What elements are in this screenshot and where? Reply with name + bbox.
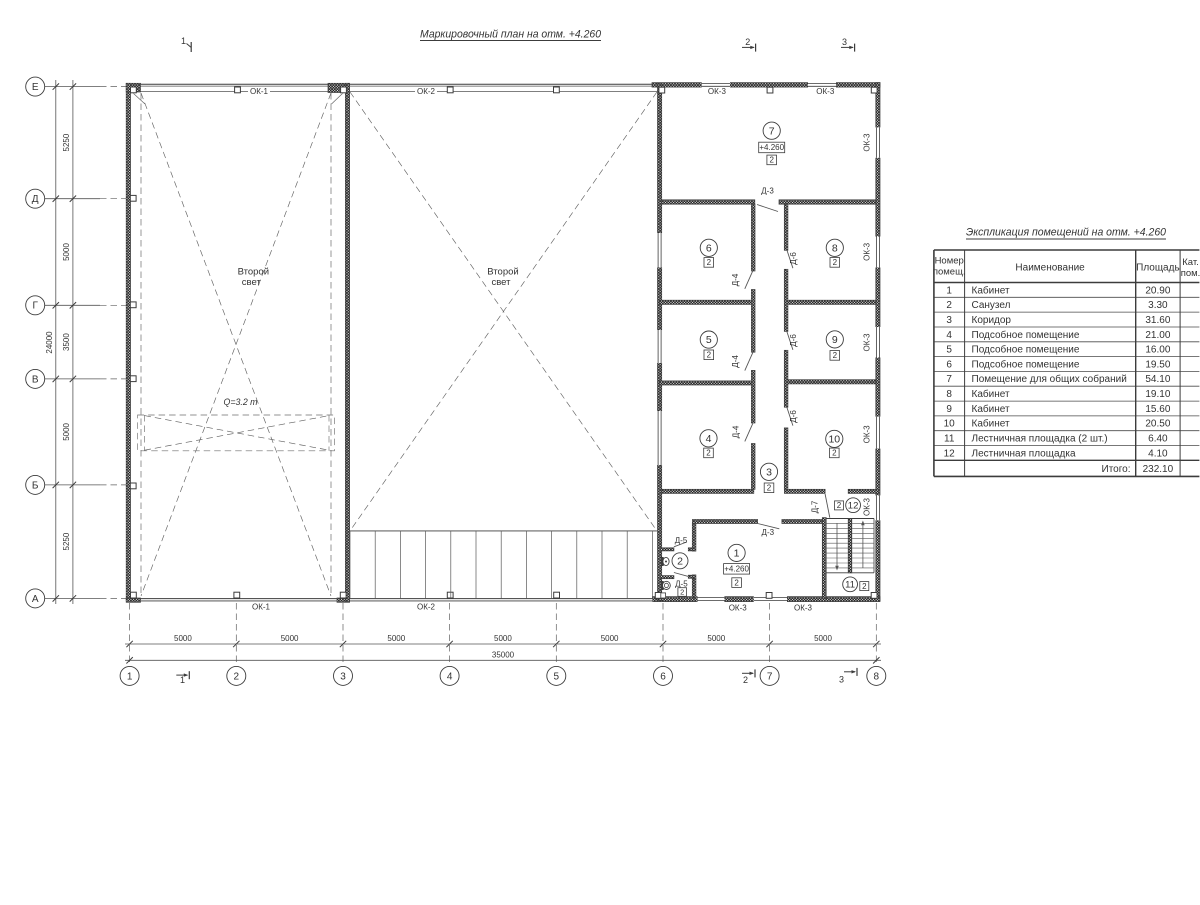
svg-text:2: 2 <box>833 258 838 267</box>
svg-text:3500: 3500 <box>62 333 71 351</box>
svg-text:2: 2 <box>862 582 867 591</box>
svg-text:Лестничная площадка (2 шт.): Лестничная площадка (2 шт.) <box>972 434 1108 445</box>
svg-text:Экспликация помещений на отм.: Экспликация помещений на отм. +4.260 <box>966 227 1167 239</box>
svg-text:5000: 5000 <box>174 634 192 643</box>
svg-text:5250: 5250 <box>62 532 71 550</box>
svg-text:помещ.: помещ. <box>933 267 966 278</box>
svg-text:2: 2 <box>734 578 739 587</box>
svg-text:5: 5 <box>706 334 712 346</box>
svg-text:Помещение для общих собраний: Помещение для общих собраний <box>972 373 1127 385</box>
svg-text:3: 3 <box>946 315 952 326</box>
svg-text:2: 2 <box>680 588 684 597</box>
svg-text:20.50: 20.50 <box>1145 419 1170 430</box>
svg-text:6.40: 6.40 <box>1148 434 1168 445</box>
svg-text:9: 9 <box>832 334 838 346</box>
svg-text:7: 7 <box>946 374 952 385</box>
svg-text:3: 3 <box>842 37 847 47</box>
svg-text:Итого:: Итого: <box>1102 464 1131 475</box>
svg-text:5: 5 <box>554 671 560 682</box>
svg-text:19.50: 19.50 <box>1145 359 1170 370</box>
svg-text:ОК-3: ОК-3 <box>863 333 872 352</box>
svg-text:1: 1 <box>946 285 952 296</box>
svg-text:4: 4 <box>706 433 712 445</box>
svg-text:Д-3: Д-3 <box>762 528 775 537</box>
svg-text:Кабинет: Кабинет <box>972 388 1010 400</box>
svg-text:15.60: 15.60 <box>1145 404 1170 415</box>
svg-text:1: 1 <box>127 671 133 682</box>
svg-text:Д-4: Д-4 <box>732 425 741 438</box>
svg-text:5000: 5000 <box>601 634 619 643</box>
svg-text:Подсобное помещение: Подсобное помещение <box>972 344 1080 356</box>
svg-text:5: 5 <box>946 345 952 356</box>
svg-text:7: 7 <box>767 671 773 682</box>
svg-text:2: 2 <box>837 501 842 510</box>
svg-text:Г: Г <box>32 301 38 312</box>
svg-text:Второй: Второй <box>238 267 269 278</box>
svg-text:Д: Д <box>32 194 39 205</box>
svg-text:2: 2 <box>946 300 952 311</box>
svg-text:Маркировочный план на отм. +4.: Маркировочный план на отм. +4.260 <box>420 29 602 41</box>
svg-text:19.10: 19.10 <box>1145 389 1170 400</box>
svg-text:Подсобное помещение: Подсобное помещение <box>972 329 1080 341</box>
svg-text:5000: 5000 <box>814 634 832 643</box>
svg-text:Д-7: Д-7 <box>810 500 819 513</box>
svg-text:8: 8 <box>946 389 952 400</box>
svg-text:ОК-3: ОК-3 <box>863 497 872 516</box>
svg-text:Д-4: Д-4 <box>731 355 740 368</box>
svg-text:16.00: 16.00 <box>1145 345 1170 356</box>
svg-text:1: 1 <box>734 548 740 560</box>
svg-text:ОК-3: ОК-3 <box>794 604 813 613</box>
svg-text:3.30: 3.30 <box>1148 300 1168 311</box>
svg-text:Кат.: Кат. <box>1182 257 1199 268</box>
svg-text:5000: 5000 <box>281 634 299 643</box>
svg-text:+4.260: +4.260 <box>724 565 749 574</box>
svg-text:8: 8 <box>874 671 880 682</box>
svg-text:пом.: пом. <box>1181 268 1200 279</box>
svg-text:232.10: 232.10 <box>1143 464 1174 475</box>
svg-text:12: 12 <box>944 448 956 459</box>
svg-text:Д-6: Д-6 <box>789 410 798 423</box>
svg-text:2: 2 <box>234 671 240 682</box>
svg-text:Наименование: Наименование <box>1015 263 1085 274</box>
svg-text:10: 10 <box>944 419 956 430</box>
svg-text:ОК-3: ОК-3 <box>863 242 872 261</box>
svg-text:8: 8 <box>832 242 838 254</box>
svg-text:2: 2 <box>832 449 837 458</box>
svg-text:1: 1 <box>181 36 186 46</box>
svg-text:Q=3.2 т: Q=3.2 т <box>224 397 258 407</box>
svg-text:2: 2 <box>769 156 774 165</box>
svg-text:Второй: Второй <box>487 267 518 278</box>
svg-text:Кабинет: Кабинет <box>972 284 1010 296</box>
svg-text:2: 2 <box>707 258 712 267</box>
svg-text:В: В <box>32 374 39 385</box>
svg-text:31.60: 31.60 <box>1145 315 1170 326</box>
svg-text:Д-6: Д-6 <box>789 252 798 265</box>
svg-text:7: 7 <box>769 125 775 137</box>
svg-text:ОК-2: ОК-2 <box>417 603 436 612</box>
svg-text:Санузел: Санузел <box>972 300 1011 311</box>
svg-text:Площадь: Площадь <box>1136 263 1180 274</box>
svg-text:4: 4 <box>447 671 453 682</box>
svg-text:ОК-3: ОК-3 <box>729 604 748 613</box>
svg-text:ОК-1: ОК-1 <box>250 87 269 96</box>
svg-text:свет: свет <box>242 277 262 288</box>
svg-text:5000: 5000 <box>387 634 405 643</box>
svg-text:Кабинет: Кабинет <box>972 403 1010 415</box>
svg-text:6: 6 <box>946 359 952 370</box>
svg-text:Номер: Номер <box>935 256 964 267</box>
svg-text:3: 3 <box>766 466 772 478</box>
svg-text:ОК-3: ОК-3 <box>708 87 727 96</box>
svg-text:6: 6 <box>706 242 712 254</box>
svg-text:11: 11 <box>845 580 855 591</box>
svg-text:6: 6 <box>660 671 666 682</box>
svg-text:Коридор: Коридор <box>972 315 1012 326</box>
svg-text:ОК-3: ОК-3 <box>863 425 872 444</box>
svg-text:5000: 5000 <box>494 634 512 643</box>
svg-text:4: 4 <box>946 330 952 341</box>
svg-text:2: 2 <box>745 37 750 47</box>
svg-text:5250: 5250 <box>62 133 71 151</box>
svg-text:12: 12 <box>848 500 859 511</box>
svg-text:3: 3 <box>839 675 844 685</box>
svg-text:2: 2 <box>833 351 838 360</box>
svg-text:+4.260: +4.260 <box>759 143 784 152</box>
svg-text:ОК-3: ОК-3 <box>816 87 835 96</box>
svg-text:Д-4: Д-4 <box>731 273 740 286</box>
svg-text:54.10: 54.10 <box>1145 374 1170 385</box>
svg-text:Подсобное помещение: Подсобное помещение <box>972 358 1080 370</box>
svg-text:Кабинет: Кабинет <box>972 418 1010 430</box>
svg-text:35000: 35000 <box>492 650 515 659</box>
svg-text:Лестничная площадка: Лестничная площадка <box>972 448 1076 459</box>
svg-text:ОК-3: ОК-3 <box>863 133 872 152</box>
svg-text:Б: Б <box>32 480 39 491</box>
svg-text:20.90: 20.90 <box>1145 285 1170 296</box>
svg-text:5000: 5000 <box>62 422 71 440</box>
svg-text:ОК-2: ОК-2 <box>417 87 436 96</box>
svg-text:24000: 24000 <box>45 331 54 354</box>
svg-text:4.10: 4.10 <box>1148 448 1168 459</box>
svg-text:2: 2 <box>677 555 683 567</box>
svg-text:10: 10 <box>828 434 840 446</box>
svg-text:Д-5: Д-5 <box>675 536 688 545</box>
svg-text:Д-6: Д-6 <box>789 334 798 347</box>
svg-text:Е: Е <box>32 82 39 93</box>
svg-text:5000: 5000 <box>707 634 725 643</box>
svg-text:3: 3 <box>340 671 346 682</box>
svg-text:2: 2 <box>767 484 772 493</box>
svg-text:Д-3: Д-3 <box>761 187 774 196</box>
svg-text:ОК-1: ОК-1 <box>252 603 271 612</box>
svg-text:5000: 5000 <box>62 243 71 261</box>
svg-text:11: 11 <box>944 434 955 445</box>
svg-text:А: А <box>32 594 39 605</box>
svg-text:2: 2 <box>707 351 712 360</box>
svg-text:2: 2 <box>743 675 748 685</box>
svg-text:9: 9 <box>946 404 952 415</box>
svg-text:свет: свет <box>491 277 511 288</box>
svg-text:2: 2 <box>706 449 711 458</box>
svg-text:21.00: 21.00 <box>1145 330 1170 341</box>
